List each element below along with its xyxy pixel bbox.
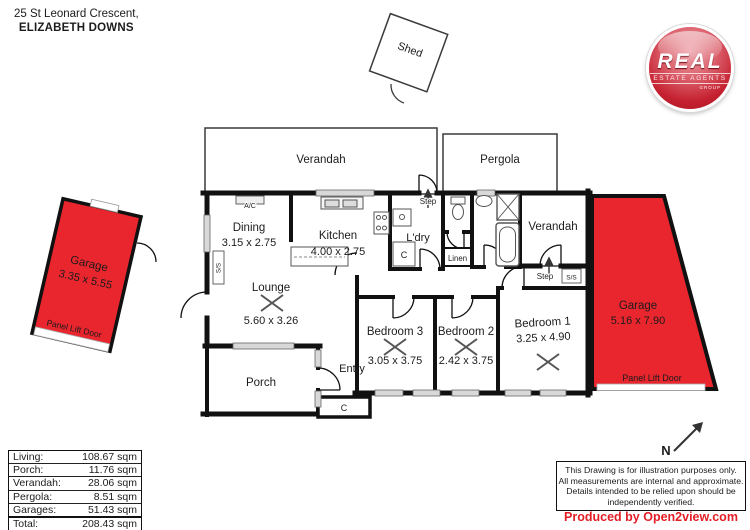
room-dims-bedroom1: 3.25 x 4.90 [516, 331, 571, 346]
area-value: 28.06 sqm [88, 477, 137, 489]
shower [497, 194, 519, 220]
disclaimer-line: This Drawing is for illustration purpose… [558, 465, 744, 476]
disclaimer-line: All measurements are internal and approx… [558, 476, 744, 487]
label-ac: A/C [244, 203, 256, 210]
garage-right-panel-door [597, 384, 705, 391]
shed-door-arc [391, 84, 404, 103]
room-dims-bedroom2: 2.42 x 3.75 [439, 355, 493, 367]
room-label-bedroom1: Bedroom 1 [514, 316, 571, 331]
label-cupboard-entry: C [341, 403, 348, 413]
room-label-dining: Dining [233, 222, 266, 234]
garage-right-door-label: Panel Lift Door [622, 373, 682, 383]
room-dims-lounge: 5.60 x 3.26 [244, 315, 298, 327]
room-dims-garage-right: 5.16 x 7.90 [611, 315, 665, 327]
area-label: Pergola: [13, 491, 52, 503]
disclaimer-line: Details intended to be relied upon shoul… [558, 486, 744, 497]
stove [374, 212, 389, 234]
table-row: Verandah: 28.06 sqm [9, 477, 141, 490]
basin [476, 196, 492, 207]
disclaimer-line: independently verified. [558, 497, 744, 508]
room-label-verandah-right: Verandah [528, 221, 577, 233]
area-value: 108.67 sqm [82, 451, 137, 463]
room-label-lounge: Lounge [252, 282, 290, 294]
room-dims-bedroom3: 3.05 x 3.75 [368, 355, 422, 367]
room-label-bedroom3: Bedroom 3 [367, 326, 423, 338]
area-label: Garages: [13, 504, 56, 516]
room-label-porch: Porch [246, 377, 276, 389]
total-label: Total: [13, 518, 38, 530]
label-step-right: Step [537, 272, 554, 281]
areas-table: Living: 108.67 sqm Porch: 11.76 sqm Vera… [8, 450, 142, 530]
garage-left: Garage 3.35 x 5.55 Panel Lift Door [32, 193, 143, 352]
room-label-pergola: Pergola [480, 154, 520, 166]
area-label: Porch: [13, 464, 43, 476]
total-value: 208.43 sqm [82, 518, 137, 530]
table-row: Pergola: 8.51 sqm [9, 491, 141, 504]
room-label-garage-right: Garage [619, 300, 657, 312]
room-label-kitchen: Kitchen [319, 230, 357, 242]
room-dims-kitchen: 4.00 x 2.75 [311, 246, 365, 258]
toilet [451, 197, 465, 220]
table-row: Garages: 51.43 sqm [9, 504, 141, 516]
room-label-entry: Entry [339, 363, 365, 375]
bathtub [496, 223, 519, 266]
disclaimer-box: This Drawing is for illustration purpose… [556, 461, 746, 511]
room-label-bedroom2: Bedroom 2 [438, 326, 494, 338]
compass-label: N [661, 443, 670, 458]
laundry-trough [393, 209, 411, 226]
area-value: 11.76 sqm [89, 464, 137, 476]
label-linen: Linen [448, 254, 467, 263]
label-ss-right: S/S [566, 275, 577, 282]
label-step-top: Step [420, 197, 437, 206]
room-label-laundry: L'dry [406, 232, 430, 244]
garage-right: Garage 5.16 x 7.90 Panel Lift Door [592, 196, 716, 391]
table-total-row: Total: 208.43 sqm [9, 516, 141, 530]
north-arrow: N [661, 422, 703, 458]
floorplan-page: 25 St Leonard Crescent, ELIZABETH DOWNS … [0, 0, 750, 530]
table-row: Porch: 11.76 sqm [9, 464, 141, 477]
label-ss-left: S/S [216, 263, 223, 273]
label-cupboard-laundry: C [401, 250, 408, 260]
room-label-verandah-top: Verandah [296, 154, 345, 166]
kitchen-sink [321, 197, 363, 209]
table-row: Living: 108.67 sqm [9, 451, 141, 464]
area-value: 51.43 sqm [88, 504, 137, 516]
credit-line: Produced by Open2view.com [556, 510, 746, 524]
area-label: Living: [13, 451, 43, 463]
room-dims-dining: 3.15 x 2.75 [222, 237, 276, 249]
area-label: Verandah: [13, 477, 61, 489]
area-value: 8.51 sqm [94, 491, 137, 503]
